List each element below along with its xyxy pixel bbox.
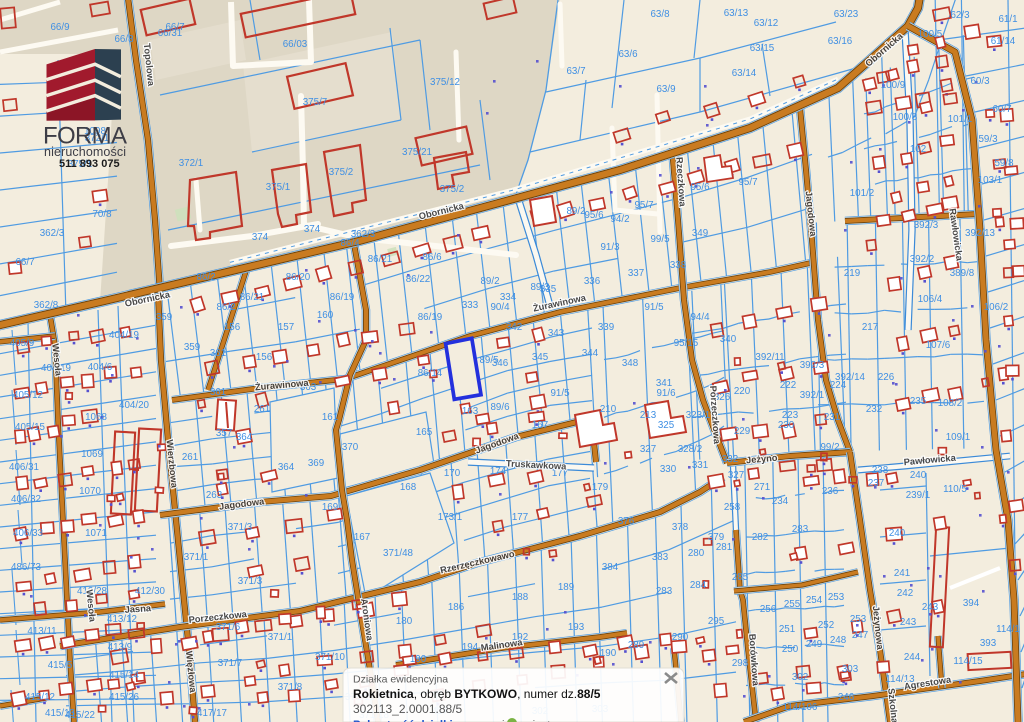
svg-text:95/7: 95/7 xyxy=(634,200,653,211)
svg-text:108/2: 108/2 xyxy=(938,398,963,409)
svg-text:242: 242 xyxy=(897,588,913,599)
svg-text:86/14: 86/14 xyxy=(418,368,443,379)
svg-text:95/15: 95/15 xyxy=(674,338,699,349)
svg-text:295: 295 xyxy=(708,616,725,627)
svg-text:101/2: 101/2 xyxy=(850,188,875,199)
svg-text:Rokietnica, obręb BYTKOWO, num: Rokietnica, obręb BYTKOWO, numer dz.88/5 xyxy=(353,687,601,701)
svg-text:394: 394 xyxy=(963,598,980,609)
svg-text:364: 364 xyxy=(236,432,253,443)
svg-text:369: 369 xyxy=(308,458,324,469)
svg-text:389/8: 389/8 xyxy=(950,268,975,279)
svg-text:94/4: 94/4 xyxy=(690,312,710,323)
svg-text:114/1: 114/1 xyxy=(996,624,1020,635)
svg-text:86/2: 86/2 xyxy=(196,272,215,283)
svg-text:253: 253 xyxy=(828,592,845,603)
svg-text:375/21: 375/21 xyxy=(402,147,432,158)
svg-text:392/1: 392/1 xyxy=(800,390,825,401)
svg-text:236: 236 xyxy=(822,486,839,497)
svg-text:371/10: 371/10 xyxy=(315,652,346,663)
svg-text:232: 232 xyxy=(866,404,882,415)
svg-text:376: 376 xyxy=(618,516,635,527)
svg-text:63/12: 63/12 xyxy=(754,18,779,29)
svg-text:344: 344 xyxy=(582,348,599,359)
svg-text:251: 251 xyxy=(779,624,795,635)
svg-text:331: 331 xyxy=(692,460,708,471)
svg-text:59/3: 59/3 xyxy=(978,134,998,145)
svg-text:66/03: 66/03 xyxy=(283,39,308,50)
svg-text:364: 364 xyxy=(278,462,295,473)
svg-text:156: 156 xyxy=(224,322,241,333)
svg-text:253: 253 xyxy=(850,614,867,625)
svg-text:261: 261 xyxy=(254,404,270,415)
svg-text:100/9: 100/9 xyxy=(881,80,906,91)
svg-text:246: 246 xyxy=(838,692,855,703)
svg-text:169: 169 xyxy=(322,502,338,513)
svg-text:375/2: 375/2 xyxy=(329,167,354,178)
svg-text:328/2: 328/2 xyxy=(678,444,703,455)
svg-text:1071: 1071 xyxy=(85,528,107,539)
svg-text:415/12: 415/12 xyxy=(25,692,55,703)
svg-text:241: 241 xyxy=(894,568,910,579)
svg-text:392/3: 392/3 xyxy=(914,220,939,231)
svg-text:348: 348 xyxy=(622,358,639,369)
svg-text:163: 163 xyxy=(462,406,479,417)
svg-text:177: 177 xyxy=(512,512,528,523)
svg-text:392/2: 392/2 xyxy=(910,254,935,265)
svg-text:282: 282 xyxy=(752,532,768,543)
svg-text:375/12: 375/12 xyxy=(430,77,460,88)
svg-text:66/7: 66/7 xyxy=(15,257,34,268)
svg-text:86/22: 86/22 xyxy=(406,274,431,285)
svg-text:340: 340 xyxy=(720,334,737,345)
svg-text:63/13: 63/13 xyxy=(724,8,749,19)
svg-text:374: 374 xyxy=(304,224,321,235)
svg-text:63/23: 63/23 xyxy=(834,9,859,20)
svg-text:240: 240 xyxy=(910,470,927,481)
svg-text:283: 283 xyxy=(656,586,673,597)
svg-text:371/3: 371/3 xyxy=(228,522,253,533)
svg-text:271: 271 xyxy=(754,482,770,493)
svg-text:91/5: 91/5 xyxy=(644,302,664,313)
svg-text:101/1: 101/1 xyxy=(948,114,973,125)
svg-text:170: 170 xyxy=(444,468,461,479)
svg-text:258: 258 xyxy=(724,502,741,513)
svg-text:89/2: 89/2 xyxy=(480,276,499,287)
svg-text:325: 325 xyxy=(658,420,675,431)
svg-text:413/9: 413/9 xyxy=(108,642,133,653)
svg-text:89/2: 89/2 xyxy=(566,206,585,217)
svg-text:345: 345 xyxy=(532,352,549,363)
svg-text:231: 231 xyxy=(824,412,840,423)
svg-text:194: 194 xyxy=(462,642,479,653)
svg-text:406/31: 406/31 xyxy=(9,462,39,473)
svg-text:66/31: 66/31 xyxy=(158,28,183,39)
svg-text:405/12: 405/12 xyxy=(13,390,43,401)
svg-text:103/1: 103/1 xyxy=(978,175,1003,186)
svg-text:168: 168 xyxy=(400,482,417,493)
svg-text:167: 167 xyxy=(532,420,548,431)
svg-text:186: 186 xyxy=(448,602,465,613)
svg-text:173/1: 173/1 xyxy=(438,512,463,523)
svg-text:250: 250 xyxy=(782,644,799,655)
svg-text:165: 165 xyxy=(416,427,433,438)
svg-text:239/1: 239/1 xyxy=(906,490,931,501)
svg-text:210: 210 xyxy=(600,404,617,415)
svg-text:95/6: 95/6 xyxy=(690,182,710,193)
svg-text:189: 189 xyxy=(558,582,574,593)
svg-text:330: 330 xyxy=(660,464,677,475)
svg-text:106/2: 106/2 xyxy=(984,302,1009,313)
svg-text:219: 219 xyxy=(844,268,860,279)
svg-text:342: 342 xyxy=(506,322,522,333)
svg-text:90/4: 90/4 xyxy=(490,302,510,313)
svg-text:180: 180 xyxy=(396,616,413,627)
svg-text:255: 255 xyxy=(784,599,801,610)
svg-text:254: 254 xyxy=(806,595,823,606)
svg-text:263: 263 xyxy=(206,490,223,501)
svg-text:63/15: 63/15 xyxy=(750,43,775,54)
svg-text:243: 243 xyxy=(922,602,939,613)
svg-text:102: 102 xyxy=(910,144,926,155)
svg-text:359: 359 xyxy=(184,342,200,353)
svg-text:404/20: 404/20 xyxy=(119,400,150,411)
svg-text:371/8: 371/8 xyxy=(278,682,303,693)
svg-text:100/8: 100/8 xyxy=(893,112,918,123)
svg-text:86/4: 86/4 xyxy=(340,238,360,249)
svg-text:346: 346 xyxy=(492,358,509,369)
svg-text:240: 240 xyxy=(889,528,906,539)
svg-text:284: 284 xyxy=(690,580,707,591)
svg-text:404/6: 404/6 xyxy=(88,362,113,373)
svg-text:290: 290 xyxy=(672,632,689,643)
svg-text:95/6: 95/6 xyxy=(584,210,604,221)
svg-text:415/5: 415/5 xyxy=(48,660,73,671)
svg-text:486/73: 486/73 xyxy=(11,562,42,573)
svg-text:161: 161 xyxy=(322,412,338,423)
svg-text:86/19: 86/19 xyxy=(418,312,443,323)
svg-text:234: 234 xyxy=(772,496,789,507)
svg-text:243: 243 xyxy=(900,617,917,628)
svg-text:261: 261 xyxy=(182,452,198,463)
svg-text:283: 283 xyxy=(792,524,809,535)
svg-text:222: 222 xyxy=(780,380,796,391)
svg-text:91/5: 91/5 xyxy=(550,388,570,399)
svg-text:110/5: 110/5 xyxy=(943,484,967,495)
svg-text:343: 343 xyxy=(548,328,565,339)
svg-text:371/1: 371/1 xyxy=(268,632,293,643)
svg-text:303: 303 xyxy=(842,664,859,675)
svg-text:223: 223 xyxy=(782,410,799,421)
svg-text:114/106: 114/106 xyxy=(783,702,818,713)
svg-text:70/8: 70/8 xyxy=(92,209,112,220)
svg-text:371/48: 371/48 xyxy=(383,548,414,559)
svg-text:405/15: 405/15 xyxy=(15,422,46,433)
svg-text:66/9: 66/9 xyxy=(50,22,69,33)
svg-text:289: 289 xyxy=(628,640,644,651)
svg-text:334: 334 xyxy=(500,292,517,303)
svg-text:375/7: 375/7 xyxy=(303,97,328,108)
svg-text:167: 167 xyxy=(354,532,370,543)
svg-text:413/11: 413/11 xyxy=(27,626,56,637)
svg-text:371/7: 371/7 xyxy=(218,658,243,669)
svg-text:1070: 1070 xyxy=(79,486,101,497)
svg-text:63/9: 63/9 xyxy=(656,84,675,95)
svg-text:94/2: 94/2 xyxy=(610,214,629,225)
svg-text:60/3: 60/3 xyxy=(970,76,990,87)
svg-text:179: 179 xyxy=(592,482,608,493)
svg-text:226: 226 xyxy=(878,372,895,383)
svg-text:86/21: 86/21 xyxy=(240,292,265,303)
svg-text:99/5: 99/5 xyxy=(650,234,670,245)
svg-text:63/6: 63/6 xyxy=(618,49,638,60)
svg-text:339: 339 xyxy=(598,322,614,333)
svg-text:66/8: 66/8 xyxy=(114,34,134,45)
svg-text:89/6: 89/6 xyxy=(490,402,510,413)
svg-text:157: 157 xyxy=(278,322,294,333)
svg-text:405/9: 405/9 xyxy=(10,338,35,349)
svg-text:370: 370 xyxy=(342,442,359,453)
svg-text:372/1: 372/1 xyxy=(179,158,204,169)
svg-text:392/11: 392/11 xyxy=(755,352,784,363)
svg-text:392/13: 392/13 xyxy=(965,228,996,239)
svg-text:59/8: 59/8 xyxy=(994,158,1014,169)
svg-text:406/33: 406/33 xyxy=(13,528,44,539)
svg-text:374: 374 xyxy=(252,232,269,243)
svg-text:91/3: 91/3 xyxy=(600,242,620,253)
svg-text:217: 217 xyxy=(862,322,878,333)
svg-text:406/32: 406/32 xyxy=(11,494,41,505)
svg-text:86/6: 86/6 xyxy=(422,252,442,263)
svg-text:190: 190 xyxy=(410,654,427,665)
svg-text:415/26: 415/26 xyxy=(109,692,140,703)
svg-text:357: 357 xyxy=(216,428,232,439)
svg-text:412/30: 412/30 xyxy=(135,586,166,597)
svg-text:327: 327 xyxy=(728,470,744,481)
svg-text:371/3: 371/3 xyxy=(238,576,263,587)
svg-text:114/15: 114/15 xyxy=(953,656,983,667)
svg-text:256: 256 xyxy=(760,604,777,615)
svg-text:413/12: 413/12 xyxy=(107,614,137,625)
svg-text:375/2: 375/2 xyxy=(440,184,465,195)
svg-text:107/6: 107/6 xyxy=(926,340,951,351)
svg-text:156: 156 xyxy=(256,352,273,363)
svg-text:91/6: 91/6 xyxy=(656,388,676,399)
svg-text:378: 378 xyxy=(672,522,689,533)
svg-text:61/1: 61/1 xyxy=(998,14,1017,25)
svg-text:220: 220 xyxy=(734,386,751,397)
svg-text:302113_2.0001.88/5: 302113_2.0001.88/5 xyxy=(353,702,463,716)
svg-text:298: 298 xyxy=(732,658,749,669)
svg-text:Jasna: Jasna xyxy=(124,603,152,615)
svg-text:393: 393 xyxy=(980,638,997,649)
svg-text:235: 235 xyxy=(910,396,927,407)
svg-text:392/14: 392/14 xyxy=(835,372,866,383)
svg-text:95/7: 95/7 xyxy=(738,177,757,188)
svg-text:63/7: 63/7 xyxy=(566,66,585,77)
svg-text:323/1: 323/1 xyxy=(686,410,711,421)
svg-text:280: 280 xyxy=(688,548,705,559)
svg-text:341: 341 xyxy=(656,378,672,389)
svg-text:404/19: 404/19 xyxy=(109,330,139,341)
svg-text:333: 333 xyxy=(462,300,479,311)
svg-text:99/2: 99/2 xyxy=(820,442,839,453)
svg-text:362/3: 362/3 xyxy=(40,228,65,239)
svg-text:1068: 1068 xyxy=(85,412,107,423)
svg-text:61/14: 61/14 xyxy=(991,36,1016,47)
svg-text:415/22: 415/22 xyxy=(65,710,95,721)
svg-text:337: 337 xyxy=(628,268,644,279)
svg-text:86/20: 86/20 xyxy=(286,272,311,283)
svg-text:174: 174 xyxy=(490,466,507,477)
svg-text:193: 193 xyxy=(568,622,585,633)
svg-text:371/1: 371/1 xyxy=(184,552,209,563)
svg-text:252: 252 xyxy=(818,620,834,631)
svg-text:60/7: 60/7 xyxy=(992,104,1011,115)
svg-text:248: 248 xyxy=(830,635,847,646)
svg-text:213: 213 xyxy=(640,410,657,421)
svg-text:361: 361 xyxy=(210,387,226,398)
svg-text:62/3: 62/3 xyxy=(950,10,970,21)
svg-text:375/1: 375/1 xyxy=(266,182,291,193)
svg-text:415/14: 415/14 xyxy=(109,670,140,681)
svg-text:281: 281 xyxy=(716,542,732,553)
svg-text:383: 383 xyxy=(652,552,669,563)
svg-text:100/5: 100/5 xyxy=(918,29,943,40)
svg-text:109/1: 109/1 xyxy=(946,432,971,443)
svg-text:338: 338 xyxy=(670,260,687,271)
svg-text:302: 302 xyxy=(792,672,808,683)
svg-text:86/19: 86/19 xyxy=(330,292,355,303)
svg-text:384: 384 xyxy=(602,562,619,573)
svg-text:285: 285 xyxy=(732,572,749,583)
svg-text:63/16: 63/16 xyxy=(828,36,853,47)
svg-text:417/17: 417/17 xyxy=(197,708,227,719)
svg-text:392/3: 392/3 xyxy=(800,360,825,371)
svg-text:63/14: 63/14 xyxy=(732,68,757,79)
svg-text:106/4: 106/4 xyxy=(918,294,943,305)
svg-text:247: 247 xyxy=(852,630,868,641)
svg-text:361: 361 xyxy=(210,348,226,359)
svg-text:229: 229 xyxy=(734,426,750,437)
svg-text:63/8: 63/8 xyxy=(650,9,670,20)
svg-text:362/8: 362/8 xyxy=(34,300,59,311)
svg-text:359: 359 xyxy=(156,312,172,323)
svg-text:230: 230 xyxy=(778,420,795,431)
svg-text:349: 349 xyxy=(692,228,708,239)
svg-text:244: 244 xyxy=(904,652,921,663)
svg-text:190: 190 xyxy=(600,648,617,659)
svg-text:511 893 075: 511 893 075 xyxy=(59,158,120,170)
svg-text:188: 188 xyxy=(512,592,529,603)
svg-text:1069: 1069 xyxy=(81,449,103,460)
svg-text:Działka ewidencyjna: Działka ewidencyjna xyxy=(353,674,448,686)
svg-text:332: 332 xyxy=(722,454,738,465)
svg-text:86/21: 86/21 xyxy=(368,254,393,265)
svg-text:237: 237 xyxy=(868,478,884,489)
svg-text:238: 238 xyxy=(872,465,889,476)
svg-text:371/6: 371/6 xyxy=(216,622,241,633)
svg-text:86/2: 86/2 xyxy=(216,302,235,313)
svg-text:335: 335 xyxy=(540,284,557,295)
svg-text:249: 249 xyxy=(806,639,822,650)
svg-text:336: 336 xyxy=(584,276,601,287)
svg-text:327: 327 xyxy=(640,444,656,455)
svg-text:160: 160 xyxy=(317,310,334,321)
